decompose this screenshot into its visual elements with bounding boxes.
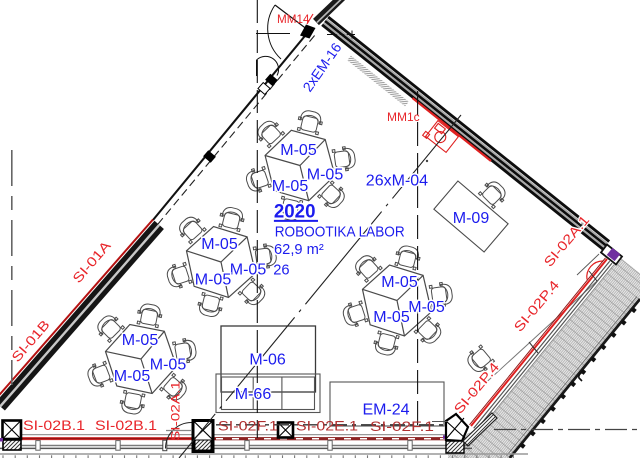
svg-text:M-05: M-05: [230, 262, 267, 279]
svg-text:M-06: M-06: [249, 351, 286, 368]
svg-text:M-05: M-05: [307, 167, 344, 184]
svg-text:M-05: M-05: [122, 332, 159, 349]
svg-text:MM1c: MM1c: [387, 110, 420, 124]
svg-text:SI-02B.1: SI-02B.1: [95, 418, 157, 433]
svg-text:26xM-04: 26xM-04: [366, 173, 428, 190]
svg-text:SI-02E.1: SI-02E.1: [296, 419, 358, 434]
svg-text:SI-02F.1: SI-02F.1: [370, 419, 434, 434]
svg-text:EM-24: EM-24: [362, 402, 409, 419]
svg-text:M-05: M-05: [114, 368, 151, 385]
svg-text:M-66: M-66: [235, 386, 272, 403]
svg-text:MM14: MM14: [277, 13, 310, 26]
svg-text:2020: 2020: [274, 200, 316, 222]
svg-text:M-05: M-05: [201, 236, 238, 253]
svg-text:M-05: M-05: [381, 274, 418, 291]
svg-text:SI-02B.1: SI-02B.1: [23, 418, 85, 433]
svg-text:M-05: M-05: [373, 309, 410, 326]
svg-text:26: 26: [273, 262, 289, 278]
svg-text:M-05: M-05: [195, 272, 232, 289]
svg-text:ROBOOTIKA LABOR: ROBOOTIKA LABOR: [275, 224, 405, 240]
svg-text:M-05: M-05: [280, 142, 317, 159]
svg-text:M-05: M-05: [150, 357, 187, 374]
svg-text:M-05: M-05: [408, 299, 445, 316]
svg-text:SI-02F.1: SI-02F.1: [218, 419, 278, 434]
svg-text:62,9 m²: 62,9 m²: [274, 242, 324, 258]
svg-text:SI-02A.1: SI-02A.1: [171, 381, 183, 441]
svg-text:M-09: M-09: [453, 210, 490, 227]
svg-text:M-05: M-05: [272, 178, 309, 195]
